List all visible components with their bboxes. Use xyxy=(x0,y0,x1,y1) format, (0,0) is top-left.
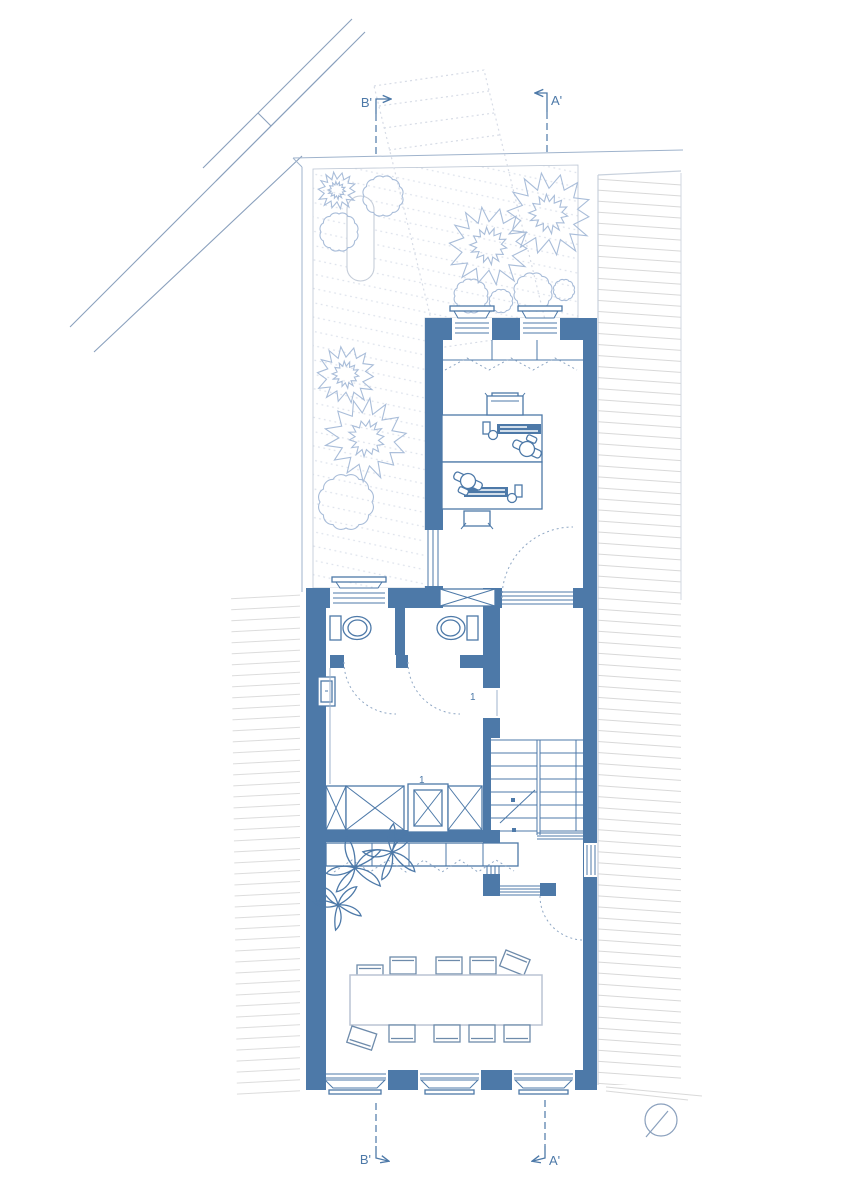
dining-chair xyxy=(504,1025,530,1042)
door-number-label: 1 xyxy=(470,692,476,703)
neighbor-hatch-right xyxy=(598,171,702,1100)
dining-chair xyxy=(347,1026,377,1050)
desk xyxy=(442,462,542,509)
duct-shaft xyxy=(440,589,495,606)
stair-treads xyxy=(491,740,583,835)
dining-chair xyxy=(500,950,530,976)
elevator xyxy=(408,784,448,832)
shaft-void xyxy=(326,786,346,830)
section-marker-b-top: B' xyxy=(361,95,390,154)
printer-stand xyxy=(461,511,493,529)
glazed-partition xyxy=(500,886,540,895)
door-swing xyxy=(502,527,573,598)
section-label: A' xyxy=(549,1153,560,1168)
toilet-icon xyxy=(330,616,371,640)
dining-chair xyxy=(470,957,496,974)
hall: 1 1 xyxy=(318,668,497,832)
shaft-void xyxy=(448,786,482,830)
window xyxy=(420,1074,479,1094)
door-threshold xyxy=(502,592,573,604)
window xyxy=(330,577,388,608)
staircase xyxy=(491,740,597,839)
section-marker-a-bottom: A' xyxy=(533,1100,560,1168)
window xyxy=(424,530,444,586)
section-marker-a-top: A' xyxy=(536,93,562,153)
dining-room xyxy=(307,816,573,1094)
window xyxy=(584,843,597,877)
shaft-void xyxy=(346,786,404,830)
window xyxy=(514,1074,573,1094)
door-swing xyxy=(540,896,584,940)
door-swing xyxy=(344,662,396,714)
section-marker-b-bottom: B' xyxy=(360,1103,388,1167)
section-label: B' xyxy=(361,95,372,110)
electrical-panel xyxy=(318,677,335,706)
toilet-icon xyxy=(437,616,478,640)
north-symbol xyxy=(645,1104,677,1137)
door-swing xyxy=(408,662,460,714)
dining-chair xyxy=(434,1025,460,1042)
dining-chair xyxy=(436,957,462,974)
window-bench xyxy=(443,340,583,360)
floor-plan-sheet: 1 1 xyxy=(0,0,842,1191)
garden-path-oval xyxy=(347,196,374,281)
dining-table xyxy=(350,975,542,1025)
office-room xyxy=(424,306,583,606)
dining-chair xyxy=(389,1025,415,1042)
section-label: A' xyxy=(551,93,562,108)
dining-chair xyxy=(469,1025,495,1042)
dining-chair xyxy=(390,957,416,974)
printer xyxy=(485,393,525,415)
window xyxy=(324,1074,386,1094)
window xyxy=(518,306,562,340)
neighbor-hatch-left xyxy=(231,592,300,1098)
section-label: B' xyxy=(360,1152,371,1167)
window xyxy=(450,306,494,340)
floor-plan-drawing: 1 1 xyxy=(0,0,842,1191)
